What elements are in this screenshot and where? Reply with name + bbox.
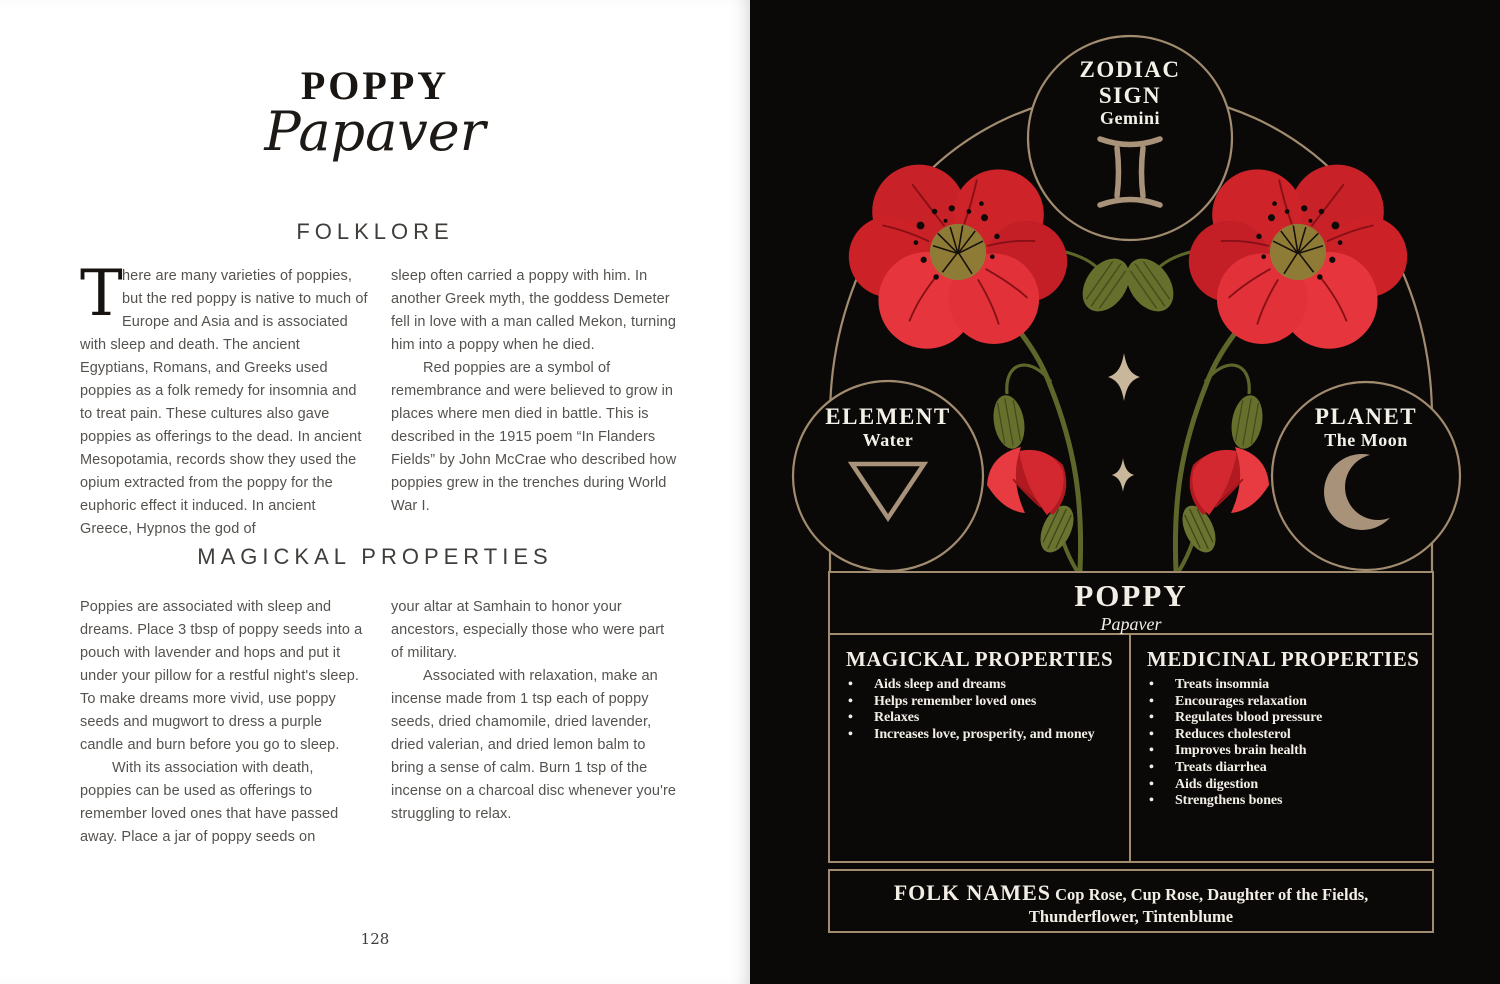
- magickal-paragraph: With its association with death, poppies…: [80, 757, 369, 849]
- property-item: Relaxes: [846, 710, 1125, 727]
- zodiac-label-line2: SIGN: [1099, 83, 1161, 108]
- folk-names-line: FOLK NAMES Cop Rose, Cup Rose, Daughter …: [879, 882, 1384, 928]
- folk-names-value: Cop Rose, Cup Rose, Daughter of the Fiel…: [1029, 885, 1368, 926]
- planet-badge: PLANET The Moon: [1272, 382, 1460, 570]
- element-badge: ELEMENT Water: [793, 381, 983, 571]
- property-item: Strengthens bones: [1147, 793, 1428, 810]
- zodiac-value: Gemini: [1100, 108, 1160, 128]
- property-item: Aids sleep and dreams: [846, 677, 1125, 694]
- property-item: Encourages relaxation: [1147, 694, 1428, 711]
- page-number: 128: [0, 930, 750, 948]
- folklore-text: here are many varieties of poppies, but …: [80, 268, 368, 537]
- hanging-bud-illustration: [990, 365, 1051, 451]
- property-item: Regulates blood pressure: [1147, 710, 1428, 727]
- plant-latin-name: Papaver: [0, 100, 750, 164]
- magickal-column-1: Poppies are associated with sleep and dr…: [80, 596, 369, 849]
- property-item: Treats insomnia: [1147, 677, 1428, 694]
- planet-value: The Moon: [1324, 430, 1408, 450]
- magickal-properties-box: MAGICKAL PROPERTIES Aids sleep and dream…: [830, 635, 1131, 861]
- small-poppy-stem: [1063, 541, 1077, 571]
- property-item: Aids digestion: [1147, 777, 1428, 794]
- properties-row: MAGICKAL PROPERTIES Aids sleep and dream…: [828, 635, 1434, 863]
- magickal-columns: Poppies are associated with sleep and dr…: [80, 596, 680, 849]
- medicinal-properties-box: MEDICINAL PROPERTIES Treats insomnia Enc…: [1131, 635, 1432, 861]
- poppy-botanical-illustration: ZODIAC SIGN Gemini ELEMENT Water: [750, 0, 1500, 575]
- book-spread: POPPY Papaver FOLKLORE There are many va…: [0, 0, 1500, 984]
- folk-names-box: FOLK NAMES Cop Rose, Cup Rose, Daughter …: [828, 869, 1434, 933]
- folk-names-heading: FOLK NAMES: [894, 880, 1051, 905]
- magickal-properties-list: Aids sleep and dreams Helps remember lov…: [846, 677, 1125, 743]
- magickal-properties-heading: MAGICKAL PROPERTIES: [846, 647, 1125, 672]
- magickal-paragraph: your altar at Samhain to honor your ance…: [391, 596, 680, 665]
- right-page: ZODIAC SIGN Gemini ELEMENT Water: [750, 0, 1500, 984]
- bud-pod: [990, 393, 1029, 451]
- property-item: Helps remember loved ones: [846, 694, 1125, 711]
- sparkle-icon: [1108, 353, 1140, 401]
- folklore-column-2: sleep often carried a poppy with him. In…: [391, 265, 680, 541]
- folklore-paragraph: Red poppies are a symbol of remembrance …: [391, 357, 680, 518]
- medicinal-properties-list: Treats insomnia Encourages relaxation Re…: [1147, 677, 1428, 810]
- folklore-heading: FOLKLORE: [0, 219, 750, 245]
- property-item: Improves brain health: [1147, 743, 1428, 760]
- small-poppy-illustration: [987, 447, 1080, 571]
- folklore-paragraph: There are many varieties of poppies, but…: [80, 265, 369, 541]
- drop-cap: T: [80, 268, 114, 320]
- property-item: Increases love, prosperity, and money: [846, 727, 1125, 744]
- property-item: Treats diarrhea: [1147, 760, 1428, 777]
- magickal-paragraph: Poppies are associated with sleep and dr…: [80, 596, 369, 757]
- zodiac-sign-badge: ZODIAC SIGN Gemini: [1028, 36, 1232, 240]
- magickal-properties-heading: MAGICKAL PROPERTIES: [0, 544, 750, 570]
- magickal-paragraph: Associated with relaxation, make an ince…: [391, 665, 680, 826]
- element-label: ELEMENT: [825, 404, 951, 429]
- medicinal-properties-heading: MEDICINAL PROPERTIES: [1147, 647, 1428, 672]
- left-page: POPPY Papaver FOLKLORE There are many va…: [0, 0, 750, 984]
- element-value: Water: [863, 430, 913, 450]
- property-item: Reduces cholesterol: [1147, 727, 1428, 744]
- folklore-columns: There are many varieties of poppies, but…: [80, 265, 680, 541]
- plant-name: POPPY: [830, 579, 1432, 613]
- zodiac-label-line1: ZODIAC: [1079, 57, 1180, 82]
- plant-latin: Papaver: [830, 614, 1432, 634]
- folklore-paragraph: sleep often carried a poppy with him. In…: [391, 265, 680, 357]
- magickal-column-2: your altar at Samhain to honor your ance…: [391, 596, 680, 849]
- sparkle-icon: [1112, 458, 1134, 492]
- plant-title-box: POPPY Papaver: [828, 571, 1434, 635]
- poppy-flower-illustration: [849, 165, 1067, 349]
- planet-label: PLANET: [1315, 404, 1417, 429]
- folklore-column-1: There are many varieties of poppies, but…: [80, 265, 369, 541]
